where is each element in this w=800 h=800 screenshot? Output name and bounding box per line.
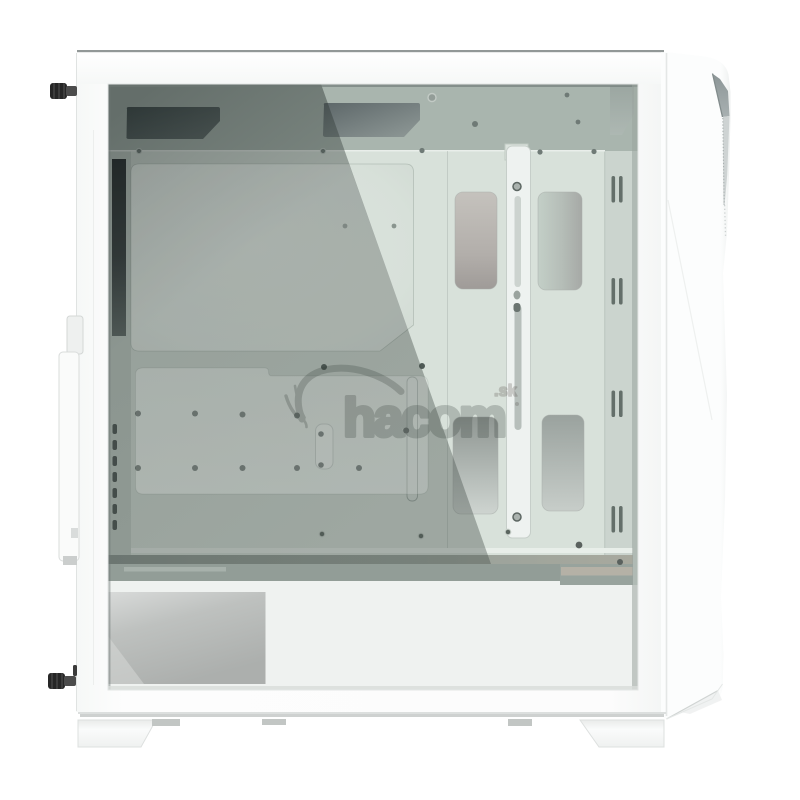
- svg-text:.sk: .sk: [494, 382, 518, 400]
- svg-text:hacom: hacom: [343, 388, 505, 448]
